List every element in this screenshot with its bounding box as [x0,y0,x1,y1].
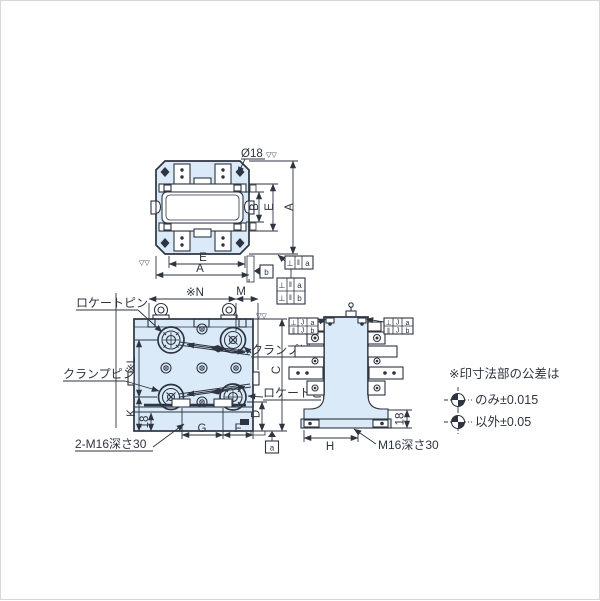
right-side-tab [253,372,259,385]
workpiece-area [162,192,243,223]
tolerance-value: ‖ [289,295,292,302]
datum-a-label: a [270,444,275,453]
note-line-other: 以外±0.05 [475,415,531,429]
tolerance-frame-double: ⊥ ‖ a ⊥ ‖ b [277,278,305,304]
datum-ref: a [305,259,310,268]
parallelism-icon: ∥ [387,327,391,335]
dim-D: D [251,410,263,418]
dim-H: H [326,441,334,453]
perpendicularity-icon: ⊥ [279,281,286,290]
top-pin [346,303,356,317]
datum-ref: a [406,320,410,327]
vise-fixture-drawing: Ø18 ▽▽ B E A E [1,1,600,601]
tap-note-side: M16深さ30 [378,438,439,452]
ring-bolts [153,304,237,321]
tolerance-value: J [301,320,305,327]
tolerance-value: ‖ [289,282,292,289]
perpendicularity-icon: ⊥ [287,259,294,268]
datum-ref: b [406,328,410,335]
finish-mark-icon: ▽▽ [139,260,150,267]
dim-F: F [234,423,241,435]
tolerance-value: J [301,328,305,335]
dim-B: B [249,203,261,211]
perpendicularity-icon: ⊥ [385,320,391,327]
dim-M: M [236,286,246,298]
top-view-bottom-dims: E A ▽▽ [139,252,249,282]
dim-A-right: A [284,203,296,211]
datum-ref: b [297,294,302,303]
locate-pin-label-left: ロケートピン [76,296,148,310]
tap-note-front: 2-M16深さ30 [75,437,147,451]
dim-A-bottom: A [196,263,204,275]
datum-ref: a [297,281,302,290]
locate-pin-top-left [158,327,184,353]
finish-mark-icon: ▽▽ [266,152,277,159]
dim-G: G [198,423,207,435]
top-view: Ø18 ▽▽ B E A E [139,148,298,282]
perpendicularity-icon: ⊥ [279,294,286,303]
datum-ref: b [311,328,315,335]
clamp-pin-label-left: クランプピン [63,367,135,381]
perpendicularity-icon: ⊥ [290,320,296,327]
parallelism-icon: ∥ [292,327,296,335]
tolerance-note: ※印寸法部の公差は のみ±0.015 以外±0.05 [444,366,559,435]
tolerance-value: J [396,328,400,335]
dim-18-side: 18 [395,413,407,426]
tolerance-value: J [396,320,400,327]
dim-C: C [271,366,283,374]
dim-N: ※N [186,287,204,299]
note-title: ※印寸法部の公差は [449,366,559,381]
dim-K: K [126,409,138,417]
dim-L: ※L [126,356,138,373]
tolerance-frames-top: ⊥ ‖ a ⊥ ‖ a ⊥ ‖ b b [254,255,313,304]
technical-drawing-page: Ø18 ▽▽ B E A E [0,0,600,600]
pallet-body-front [134,319,253,431]
dim-E-right: E [264,203,276,211]
side-view: ⊥ J a ∥ J b ⊥ J a ∥ J b 18 [289,303,439,453]
datum-a-flag: a [251,431,279,453]
dim-18: 18 [139,416,151,429]
note-line-only: のみ±0.015 [475,393,538,407]
dia18-label: Ø18 [241,148,263,160]
datum-b-label: b [264,268,269,277]
tolerance-target-icon [444,409,472,435]
datum-ref: a [311,320,315,327]
tolerance-frame-single: ⊥ ‖ a [285,256,313,269]
top-view-right-dims: B E A [246,161,298,254]
tolerance-value: ‖ [297,260,300,267]
datum-b-flag: b [254,265,273,278]
